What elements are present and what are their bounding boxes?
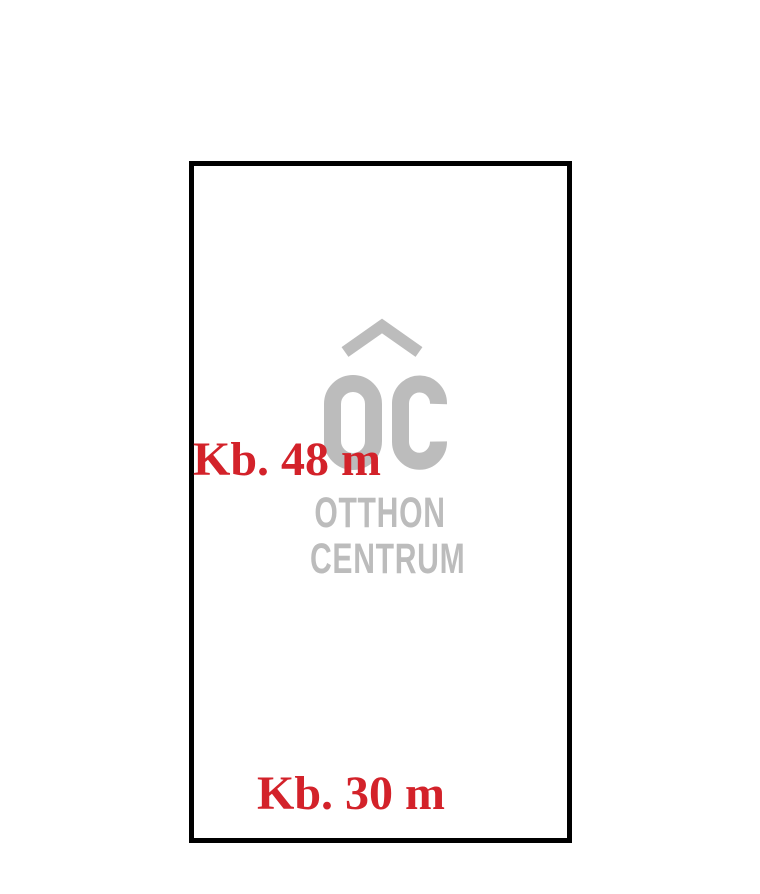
roof-chevron-icon (345, 326, 419, 352)
watermark-brand-line1: OTTHON (310, 492, 450, 535)
side-dimension-label: Kb. 48 m (193, 436, 381, 484)
bottom-dimension-label: Kb. 30 m (257, 770, 445, 818)
plot-sketch-canvas: OTTHON CENTRUM Kb. 48 m Kb. 30 m (0, 0, 760, 894)
watermark-brand-line2: CENTRUM (310, 538, 450, 581)
logo-letter-c (401, 384, 439, 461)
